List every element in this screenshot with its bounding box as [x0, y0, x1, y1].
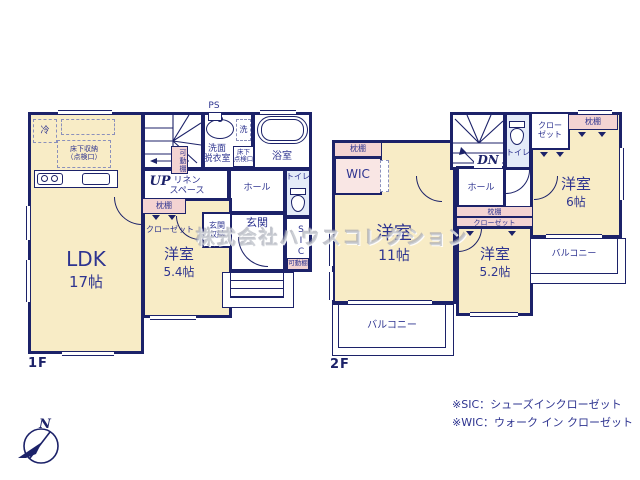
f2-bedroom52-name: 洋室 [467, 246, 523, 263]
f2-hall-label: ホール [462, 183, 500, 193]
closet-door-chevron [540, 152, 548, 157]
f1-washroom-label: 洗面脱衣室 [201, 144, 233, 165]
closet-door-chevron [508, 231, 516, 236]
toilet-tank-icon [290, 188, 306, 195]
window [26, 206, 31, 240]
f1-linen-label: リネンスペース [156, 176, 218, 197]
window [260, 110, 296, 115]
wash-basin-icon [206, 119, 234, 139]
f2-toilet-label: トイレ [505, 148, 531, 157]
f2-pillow52-label: 枕棚 [458, 208, 531, 216]
window [329, 272, 334, 300]
f1-hall-label: ホール [236, 183, 278, 193]
window [578, 110, 612, 115]
f1-sic-shelf-label: 可動棚 [287, 260, 309, 267]
window [150, 315, 196, 320]
window [62, 351, 114, 356]
bathtub-inner-icon [261, 119, 304, 141]
washer-label: 洗 [236, 125, 251, 134]
underfloor-hatch-label: 床下点検口 [233, 149, 254, 164]
legend-sic-note: ※SIC：シューズインクローゼット [452, 399, 637, 412]
f1-toilet-label: トイレ [285, 172, 311, 181]
refrigerator-label: 冷 [33, 126, 57, 136]
f1-bath-label: 浴室 [264, 151, 300, 163]
f2-balcony-south-label: バルコニー [352, 320, 432, 332]
closet-door-chevron [556, 152, 564, 157]
window [348, 300, 432, 305]
f1-ldk-size: 17帖 [57, 274, 115, 291]
kitchen-sink-icon [82, 173, 110, 185]
f2-bedroom52-size: 5.2帖 [467, 266, 523, 280]
closet-door-chevron [598, 132, 606, 137]
f2-pillow6-label: 枕棚 [570, 117, 616, 126]
legend-wic-note: ※WIC：ウォーク イン クローゼット [452, 417, 637, 430]
f1-porch-steps [230, 272, 284, 298]
wic-folding-door [380, 160, 389, 192]
stove-burner-icon [41, 175, 48, 182]
window [470, 312, 518, 317]
closet-door-chevron [578, 132, 586, 137]
window [58, 110, 112, 115]
door-swing [506, 170, 530, 194]
f1-bedroom54-size: 5.4帖 [151, 266, 207, 280]
closet-door-chevron [168, 215, 176, 220]
f1-movable-shelf-stairs-label: 可動棚 [174, 147, 186, 174]
closet-door-chevron [152, 215, 160, 220]
window [619, 148, 624, 200]
floor-plan-canvas: 可動棚 枕棚 玄関収納 可動棚 冷 床下収納（点検口） 洗 床下点検口 PS U… [0, 0, 640, 480]
f2-dn-label: DN [474, 154, 502, 168]
stove-burner-icon [51, 175, 58, 182]
f1-ldk-name: LDK [55, 248, 117, 271]
f2-bedroom6-size: 6帖 [550, 196, 602, 210]
watermark-text: 株式会社ハウスコレクション [196, 223, 469, 250]
cupboard-outline [61, 119, 115, 135]
compass-north-label: N [38, 417, 52, 432]
f2-bedroom6-closet-label: クローゼット [532, 121, 568, 139]
f2-wic-label: WIC [336, 168, 380, 182]
pipe-space-box [208, 112, 222, 121]
f1-pillow-shelf-label: 枕棚 [144, 201, 184, 210]
f1-ps-label: PS [203, 101, 225, 111]
f1-floor-label: 1F [28, 357, 58, 372]
f2-wic-pillow-label: 枕棚 [336, 144, 380, 153]
compass-north-icon: N [12, 410, 70, 472]
window [26, 260, 31, 302]
underfloor-storage-label: 床下収納（点検口） [58, 145, 110, 161]
f2-balcony-east-label: バルコニー [534, 249, 614, 259]
f2-floor-label: 2F [330, 358, 360, 373]
window [546, 234, 602, 239]
toilet-tank-icon [509, 121, 525, 128]
f2-bedroom11-size: 11帖 [366, 248, 422, 264]
